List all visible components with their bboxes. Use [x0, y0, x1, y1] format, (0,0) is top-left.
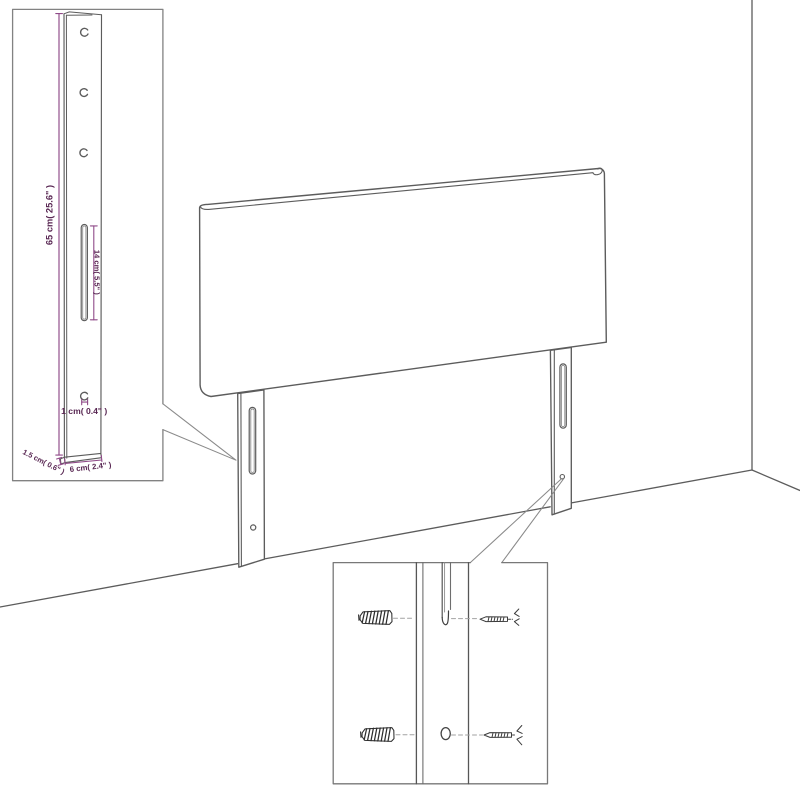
svg-text:14 cm( 5.5" ): 14 cm( 5.5" ): [93, 250, 102, 295]
svg-text:1 cm( 0.4" ): 1 cm( 0.4" ): [61, 406, 107, 416]
svg-text:65 cm( 25.6" ): 65 cm( 25.6" ): [45, 185, 55, 245]
